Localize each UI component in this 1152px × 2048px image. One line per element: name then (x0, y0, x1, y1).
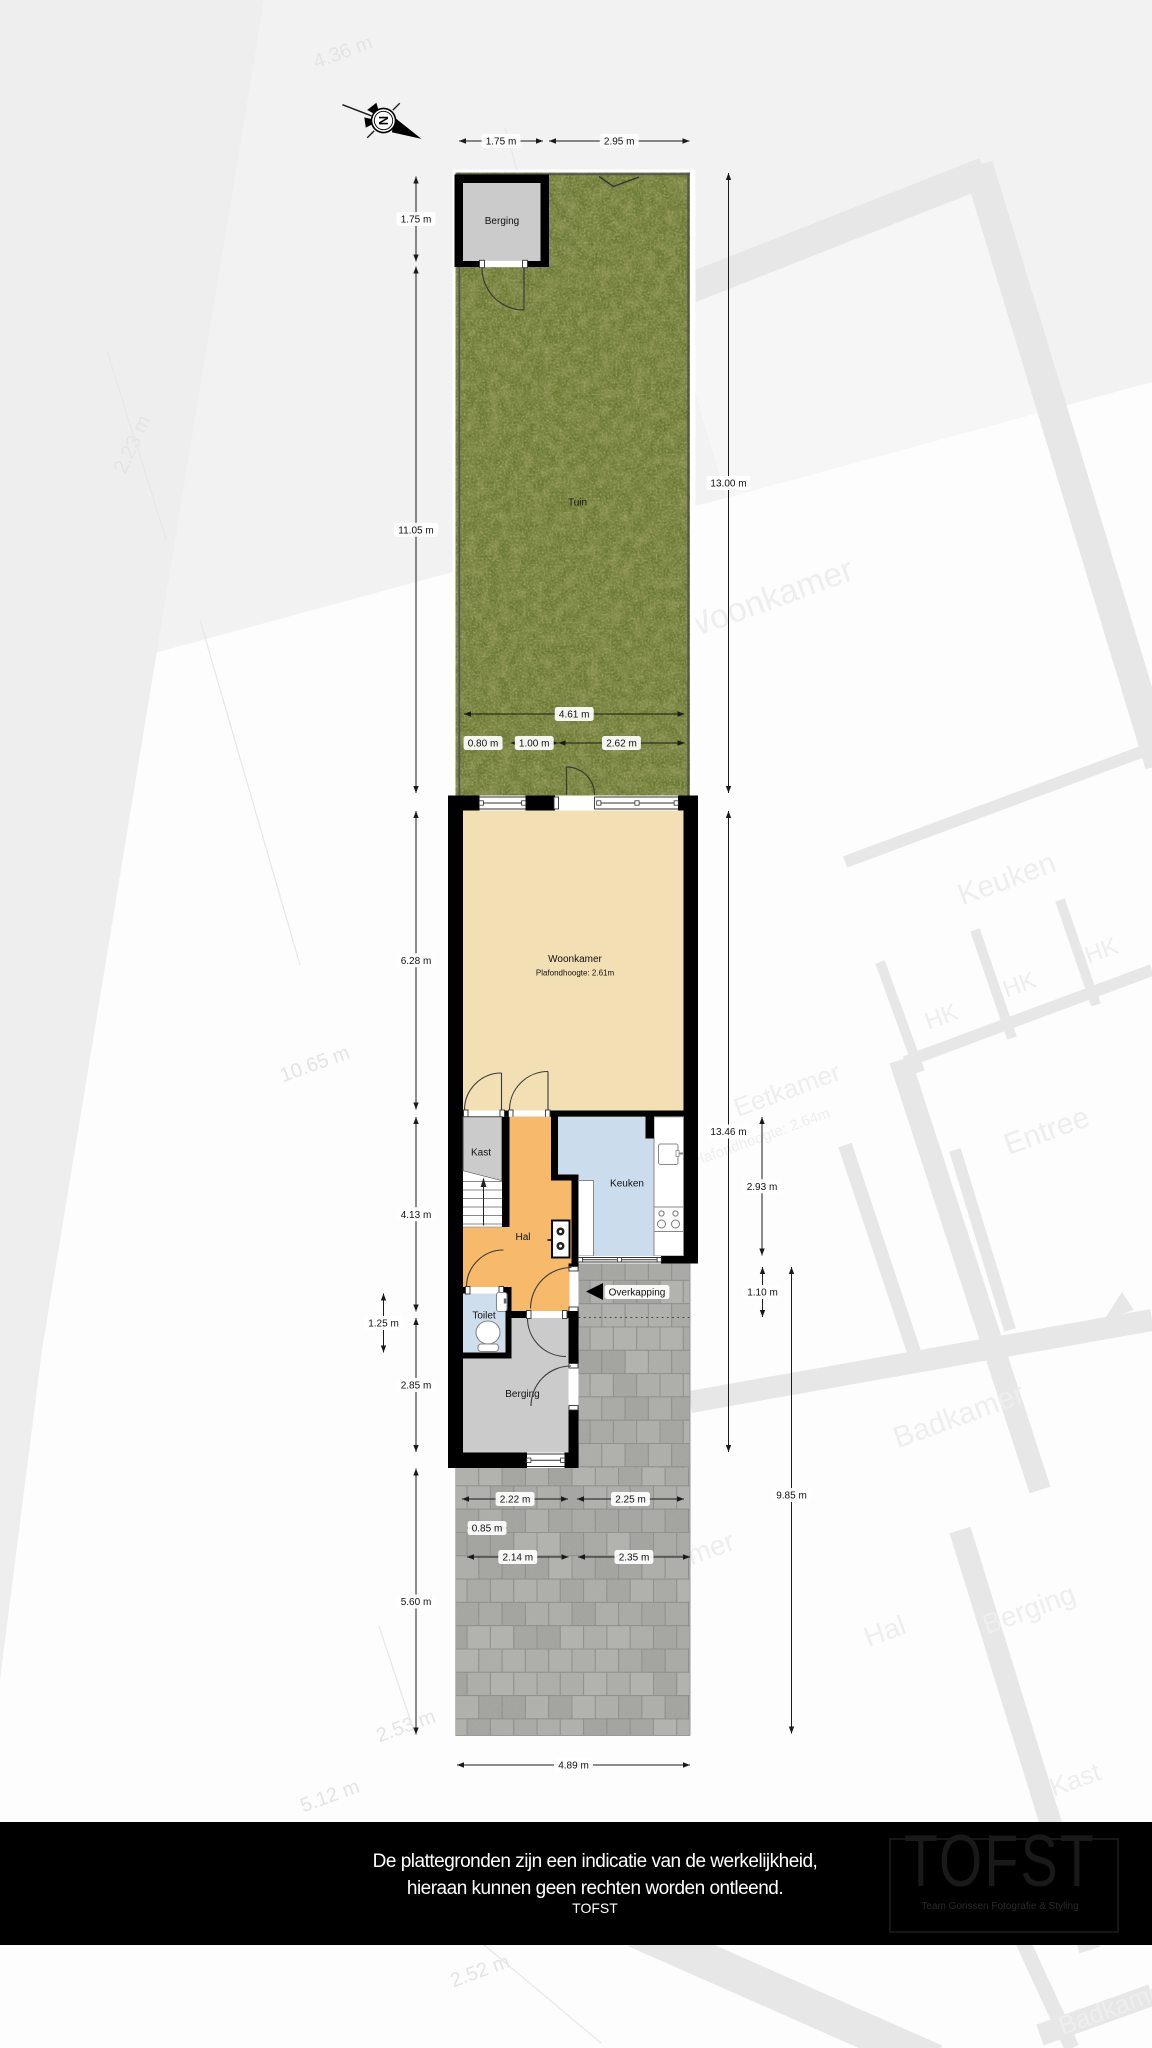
svg-text:4.89 m: 4.89 m (558, 1761, 589, 1772)
svg-text:2.25 m: 2.25 m (615, 1495, 646, 1506)
svg-text:2.22 m: 2.22 m (500, 1495, 531, 1506)
svg-text:11.05 m: 11.05 m (398, 525, 433, 536)
svg-text:hieraan kunnen geen rechten wo: hieraan kunnen geen rechten worden ontle… (407, 1878, 783, 1899)
svg-text:6.28 m: 6.28 m (401, 956, 432, 967)
svg-text:Toilet: Toilet (472, 1311, 496, 1322)
svg-text:2.95 m: 2.95 m (604, 137, 635, 148)
svg-text:TOFST: TOFST (904, 1820, 1096, 1902)
svg-text:Plafondhoogte: 2.61m: Plafondhoogte: 2.61m (536, 969, 615, 978)
svg-text:N: N (376, 116, 391, 125)
svg-text:2.14 m: 2.14 m (503, 1553, 534, 1564)
svg-text:2.35 m: 2.35 m (619, 1553, 650, 1564)
svg-text:1.25 m: 1.25 m (368, 1319, 399, 1330)
svg-text:Berging: Berging (485, 216, 519, 227)
svg-text:TOFST: TOFST (572, 1900, 618, 1916)
svg-text:1.75 m: 1.75 m (401, 215, 432, 226)
svg-text:13.00 m: 13.00 m (710, 479, 746, 490)
svg-text:2.85 m: 2.85 m (401, 1381, 432, 1392)
svg-text:0.85 m: 0.85 m (472, 1524, 503, 1535)
svg-text:Team Gorissen Fotografie & Sty: Team Gorissen Fotografie & Styling (921, 1901, 1078, 1912)
svg-text:1.75 m: 1.75 m (486, 137, 517, 148)
svg-text:9.85 m: 9.85 m (776, 1491, 807, 1502)
svg-text:Kast: Kast (471, 1148, 491, 1159)
svg-text:Tuin: Tuin (568, 498, 587, 509)
svg-text:2.93 m: 2.93 m (747, 1182, 778, 1193)
svg-text:De plattegronden zijn een indi: De plattegronden zijn een indicatie van … (373, 1851, 818, 1872)
svg-text:Woonkamer: Woonkamer (548, 954, 602, 965)
svg-text:Overkapping: Overkapping (609, 1288, 666, 1299)
svg-text:13.46 m: 13.46 m (710, 1127, 746, 1138)
svg-text:4.61 m: 4.61 m (559, 710, 590, 721)
svg-text:Keuken: Keuken (610, 1179, 644, 1190)
svg-text:Hal: Hal (515, 1232, 530, 1243)
svg-text:Berging: Berging (505, 1389, 539, 1400)
svg-text:2.62 m: 2.62 m (606, 739, 637, 750)
svg-text:5.60 m: 5.60 m (401, 1597, 432, 1608)
svg-text:4.13 m: 4.13 m (401, 1210, 432, 1221)
svg-text:1.10 m: 1.10 m (747, 1288, 778, 1299)
svg-text:0.80 m: 0.80 m (468, 739, 499, 750)
svg-text:1.00 m: 1.00 m (519, 739, 550, 750)
